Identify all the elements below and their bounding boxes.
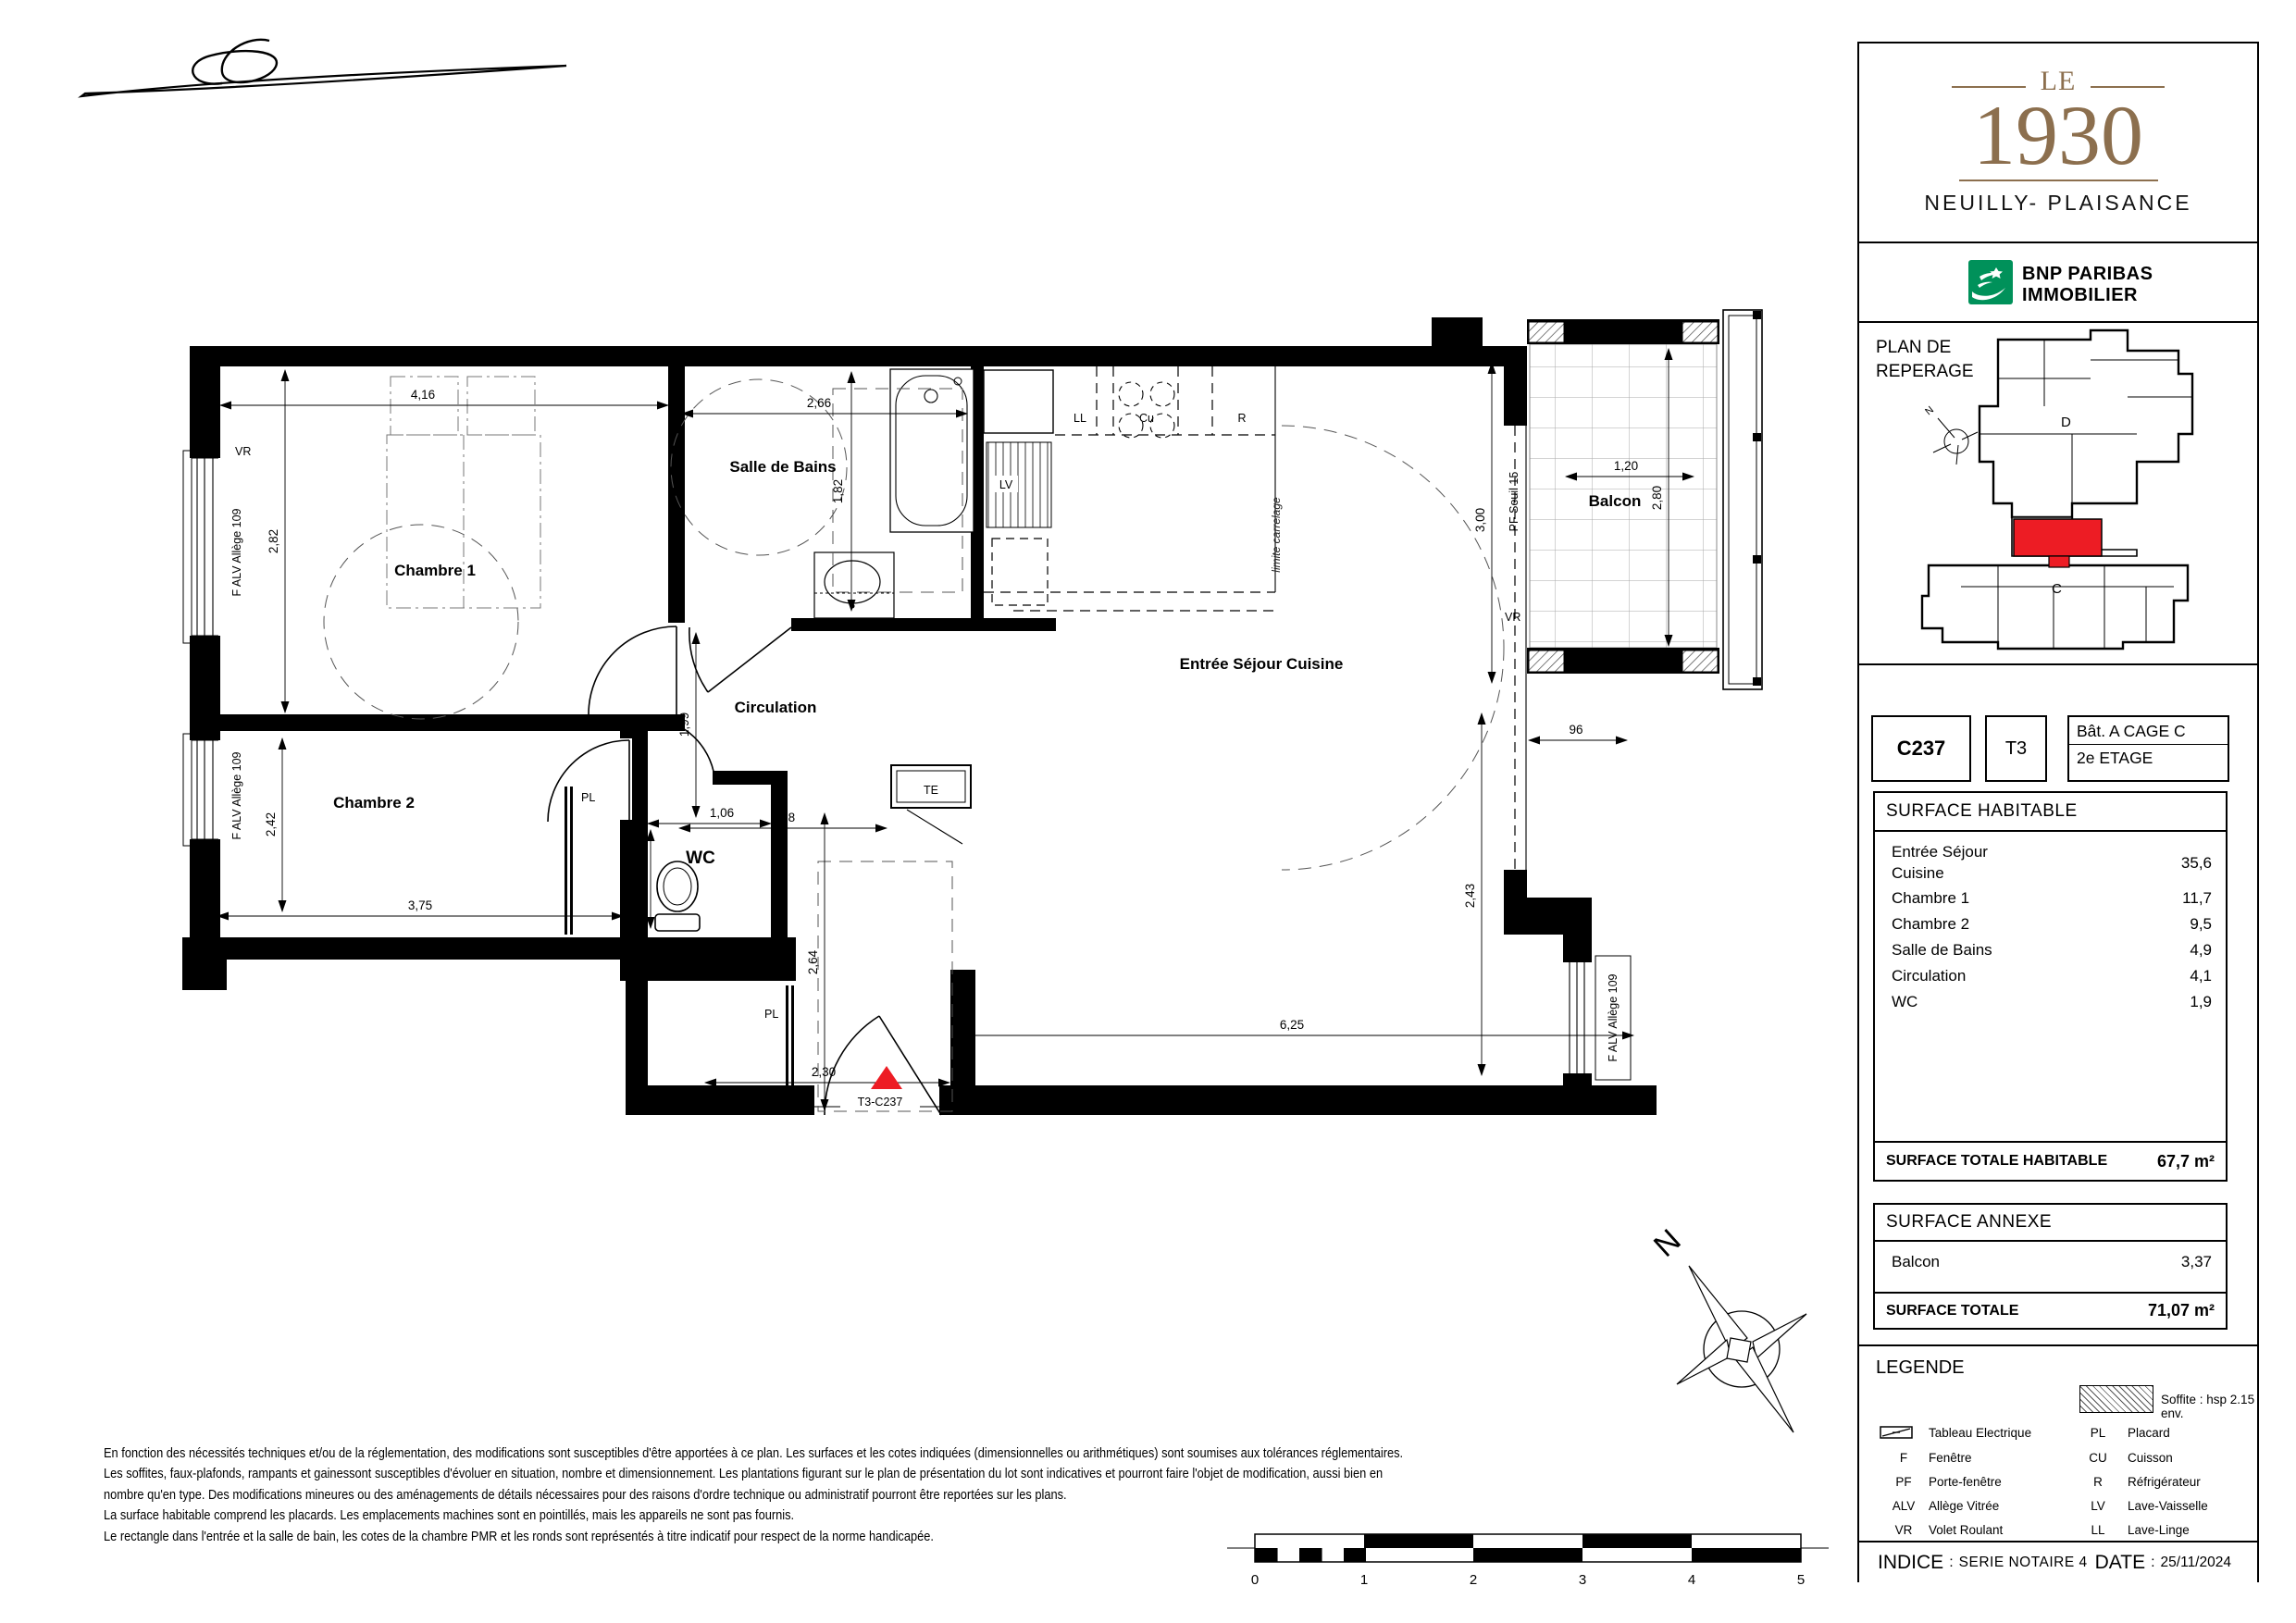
room-label-chambre2: Chambre 2 [333,794,415,811]
scale-3: 3 [1579,1572,1586,1588]
legend-item-te-label: Tableau Electrique [1929,1426,2031,1440]
room-label-chambre1: Chambre 1 [394,562,476,579]
legend-item-alv-abbr: ALV [1885,1499,1922,1513]
dim-106: 1,06 [710,806,734,820]
date-value: 25/11/2024 [2161,1555,2231,1571]
reperage-box: PLAN DE REPERAGE D C N [1859,323,2257,665]
ll-label: LL [1074,412,1086,425]
legend-item-vr-abbr: VR [1885,1523,1922,1537]
agency-line2: IMMOBILIER [2022,285,2153,306]
closet-chambre2 [565,787,573,935]
table-row: Balcon3,37 [1892,1253,2212,1271]
title-block-panel: LE 1930 NEUILLY- PLAISANCE BNP PARIBAS I… [1857,42,2259,1582]
dim-375: 3,75 [408,898,432,912]
disclaimer-line: nombre qu'en type. Des modifications min… [104,1485,1242,1505]
legend-item-pl-label: Placard [2128,1426,2170,1440]
room-label-balcon: Balcon [1589,492,1642,510]
dim-300: 3,00 [1473,508,1487,532]
electrical-panel-legend-icon [1880,1424,1915,1441]
dim-136: 1,36 [632,867,646,891]
scale-2: 2 [1470,1572,1477,1588]
kitchen-zone [984,366,1275,611]
dim-264: 2,64 [806,949,820,974]
unit-building: Bât. A CAGE C [2069,717,2228,745]
dim-96: 96 [1569,723,1582,737]
washbasin-icon [814,552,894,618]
door-chambre1 [589,626,676,714]
legend-item-r-label: Réfrigérateur [2128,1475,2201,1489]
indice-date-row: INDICE : SERIE NOTAIRE 4 DATE : 25/11/20… [1859,1542,2257,1582]
dim-243: 2,43 [1463,884,1477,908]
bathtub-icon [890,369,974,532]
surface-annexe-title: SURFACE ANNEXE [1875,1205,2226,1242]
unit-floor: 2e ETAGE [2069,745,2228,772]
dim-198: 1,98 [771,811,795,824]
project-logo-box: LE 1930 NEUILLY- PLAISANCE [1859,42,2257,243]
legend-item-f-abbr: F [1885,1451,1922,1465]
vr-label-2: VR [233,721,249,734]
surface-habitable-title: SURFACE HABITABLE [1875,793,2226,832]
project-city: NEUILLY- PLAISANCE [1859,191,2257,216]
dim-282: 2,82 [267,529,280,553]
legend-item-vr-label: Volet Roulant [1929,1523,2003,1537]
signature-mark [81,40,566,96]
entrance-triangle-icon [871,1066,902,1089]
pl-label-2: PL [764,1008,778,1021]
disclaimer-line: La surface habitable comprend les placar… [104,1505,1242,1526]
reperage-building-lower [1922,565,2188,649]
surface-annexe-table: SURFACE ANNEXE Balcon3,37 SURFACE TOTALE… [1873,1203,2228,1330]
door-bathroom [689,627,791,692]
dim-230: 2,30 [812,1065,836,1079]
dim-199: 1,99 [677,712,691,737]
legend-item-cu-abbr: CU [2079,1451,2116,1465]
vr-label-1: VR [235,445,251,458]
dim-280: 2,80 [1650,486,1664,510]
floorplan-sheet: { "project": { "logo_top": "LE", "logo_y… [0,0,2296,1623]
room-label-circulation: Circulation [735,699,817,716]
compass-n-label: N [1647,1222,1688,1264]
logo-rule-right [2091,86,2165,88]
lot-number-label: T3-C237 [858,1096,903,1109]
soffite-swatch-icon [2079,1385,2153,1413]
scale-5: 5 [1797,1572,1805,1588]
surface-habitable-total: SURFACE TOTALE HABITABLE 67,7 m² [1875,1141,2226,1180]
room-label-wc: WC [686,849,715,868]
table-row: Chambre 29,5 [1892,915,2212,934]
indice-label: INDICE [1878,1552,1943,1574]
room-label-sejour: Entrée Séjour Cuisine [1180,655,1344,673]
date-label: DATE [2095,1552,2145,1574]
scale-1: 1 [1360,1572,1368,1588]
window-sejour-east [1563,956,1631,1080]
legend-title: LEGENDE [1876,1357,1965,1379]
reperage-cage-c: C [2052,581,2062,597]
unit-code-box: C237 [1871,715,1971,782]
logo-rule-left [1952,86,2026,88]
room-label-salle-de-bains: Salle de Bains [729,458,836,476]
cu-label: Cu [1139,412,1154,425]
electrical-panel-icon [891,765,971,844]
indice-value: SERIE NOTAIRE 4 [1959,1555,2088,1571]
te-label: TE [924,784,938,797]
reperage-mini-plan: D C N [1859,323,2257,663]
unit-location-box: Bât. A CAGE C 2e ETAGE [2067,715,2229,782]
alv-label-1: F ALV Allège 109 [230,508,243,596]
dishwasher-icon [984,370,1053,605]
table-row: WC1,9 [1892,993,2212,1011]
legend-item-ll-abbr: LL [2079,1523,2116,1537]
reperage-building-upper [1980,330,2192,517]
balcony-railing [1723,310,1762,689]
svg-text:N: N [1923,404,1936,417]
dim-242: 2,42 [264,812,278,836]
floorplan-drawing: 4,16 2,66 2,82 1,82 2,42 3,75 1,99 1,98 … [0,0,1860,1623]
cooktop-icon [1119,382,1174,438]
lv-label: LV [999,478,1013,491]
logo-1930-text: 1930 [1859,97,2257,174]
unit-type: T3 [2005,738,2027,760]
disclaimer-line: Les soffites, faux-plafonds, rampants et… [104,1464,1242,1484]
legend-item-ll-label: Lave-Linge [2128,1523,2190,1537]
unit-code: C237 [1897,737,1946,761]
toilet-icon [655,861,700,931]
dim-416: 4,16 [411,388,435,402]
window-chambre2 [183,734,220,846]
legend-item-alv-label: Allège Vitrée [1929,1499,1999,1513]
dim-182: 1,82 [831,479,845,503]
surface-annexe-total: SURFACE TOTALE 71,07 m² [1875,1292,2226,1328]
dim-266: 2,66 [807,396,831,410]
bnp-logo-icon [1968,260,2013,304]
vr-label-3: VR [1505,611,1520,624]
table-row: Circulation4,1 [1892,967,2212,985]
legend-box: LEGENDE Soffite : hsp 2.15 env. Tableau … [1859,1344,2257,1542]
disclaimer-line: Le rectangle dans l'entrée et la salle d… [104,1527,1242,1547]
legend-item-r-abbr: R [2079,1475,2116,1489]
pl-label-1: PL [581,791,595,804]
logo-le-text: LE [1859,66,2257,97]
surface-habitable-table: SURFACE HABITABLE Entrée Séjour Cuisine3… [1873,791,2228,1182]
disclaimer-line: En fonction des nécessités techniques et… [104,1443,1242,1464]
legend-item-lv-label: Lave-Vaisselle [2128,1499,2208,1513]
scale-bar: 0 1 2 3 4 5 [1227,1534,1829,1588]
table-row: Chambre 111,7 [1892,889,2212,908]
disclaimer-text: En fonction des nécessités techniques et… [104,1443,1242,1547]
r-label: R [1237,412,1246,425]
door-chambre2 [548,740,629,822]
unit-info-row: C237 T3 Bât. A CAGE C 2e ETAGE [1859,665,2257,782]
porte-fenetre [1282,426,1526,870]
legend-item-lv-abbr: LV [2079,1499,2116,1513]
agency-line1: BNP PARIBAS [2022,264,2153,285]
pf-seuil-label: PF Seuil 15 [1508,472,1520,532]
soffite-label: Soffite : hsp 2.15 env. [2161,1393,2257,1420]
entrance-marker: T3-C237 [840,1066,920,1109]
table-row: Salle de Bains4,9 [1892,941,2212,960]
table-row: Cuisine35,6 [1892,864,2212,883]
legend-item-pl-abbr: PL [2079,1426,2116,1440]
legend-item-pf-abbr: PF [1885,1475,1922,1489]
legend-item-f-label: Fenêtre [1929,1451,1972,1465]
north-compass: N [1647,1222,1806,1432]
reperage-compass-icon: N [1923,404,1978,465]
window-chambre1 [183,451,220,643]
alv-label-2: F ALV Allège 109 [230,751,243,839]
dim-625: 6,25 [1280,1018,1304,1032]
agency-box: BNP PARIBAS IMMOBILIER [1859,243,2257,323]
legend-item-cu-label: Cuisson [2128,1451,2173,1465]
limite-carrelage-label: limite carrelage [1270,497,1283,573]
balcony [1527,310,1762,689]
reperage-unit-highlight [2014,519,2102,556]
agency-name: BNP PARIBAS IMMOBILIER [2022,264,2153,306]
table-row: Entrée Séjour [1892,843,2212,861]
reperage-cage-d: D [2061,415,2071,430]
scale-4: 4 [1688,1572,1695,1588]
legend-item-pf-label: Porte-fenêtre [1929,1475,2002,1489]
alv-label-3: F ALV Allège 109 [1607,973,1620,1061]
unit-type-box: T3 [1985,715,2047,782]
dim-120: 1,20 [1614,459,1638,473]
scale-0: 0 [1251,1572,1259,1588]
